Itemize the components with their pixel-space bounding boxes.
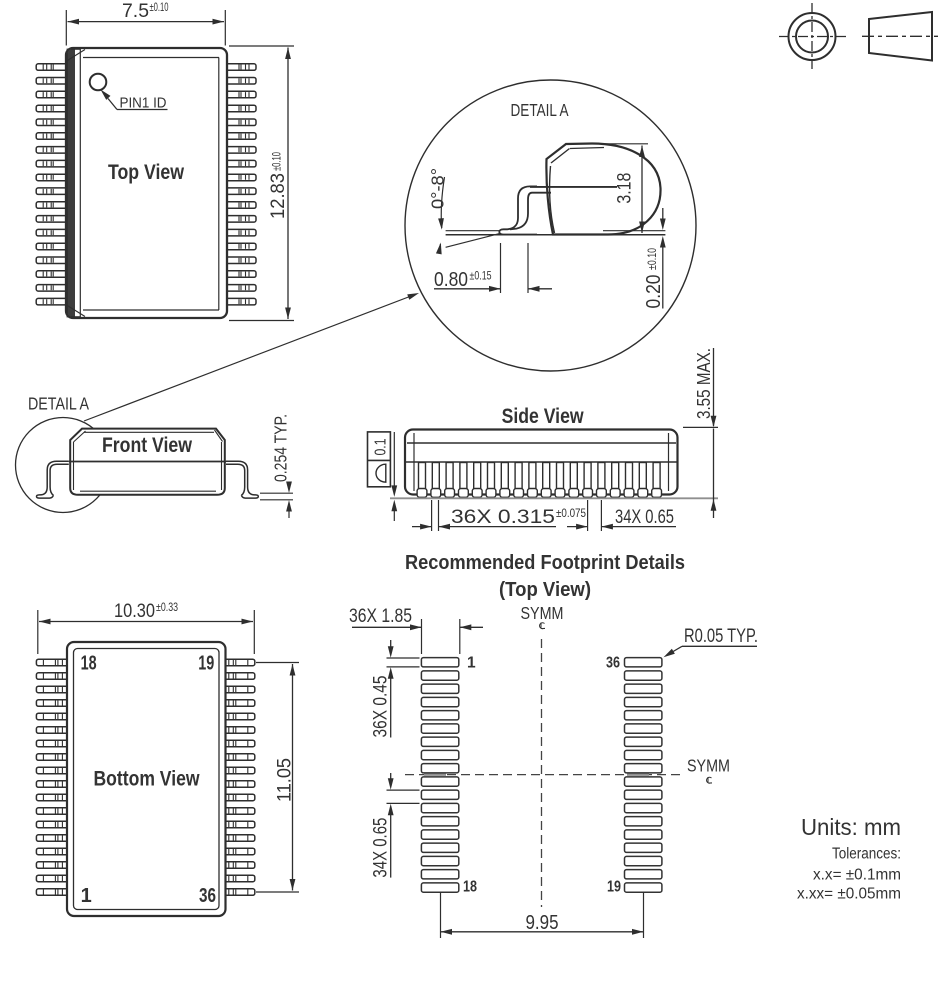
svg-text:Top View: Top View bbox=[108, 161, 185, 184]
svg-text:9.95: 9.95 bbox=[526, 912, 559, 934]
svg-text:10.30: 10.30 bbox=[114, 600, 155, 622]
svg-text:34X 0.65: 34X 0.65 bbox=[615, 507, 674, 528]
svg-text:x.x= ±0.1mm: x.x= ±0.1mm bbox=[813, 867, 901, 884]
svg-text:36X 0.45: 36X 0.45 bbox=[371, 676, 392, 738]
svg-text:12.83: 12.83 bbox=[267, 173, 289, 219]
svg-text:3.55 MAX.: 3.55 MAX. bbox=[693, 348, 714, 419]
svg-text:±0.10: ±0.10 bbox=[272, 152, 284, 171]
svg-text:Bottom View: Bottom View bbox=[94, 768, 201, 791]
svg-text:36: 36 bbox=[606, 654, 620, 671]
svg-text:±0.10: ±0.10 bbox=[647, 248, 659, 270]
svg-text:Front View: Front View bbox=[102, 434, 193, 457]
svg-text:18: 18 bbox=[81, 653, 97, 675]
svg-text:36: 36 bbox=[199, 885, 216, 907]
svg-text:(Top View): (Top View) bbox=[499, 578, 591, 601]
svg-text:Recommended Footprint Details: Recommended Footprint Details bbox=[405, 551, 685, 574]
svg-text:±0.33: ±0.33 bbox=[156, 602, 178, 614]
svg-text:±0.15: ±0.15 bbox=[470, 271, 492, 283]
svg-text:R0.05 TYP.: R0.05 TYP. bbox=[684, 626, 758, 647]
svg-text:SYMM: SYMM bbox=[521, 603, 564, 623]
svg-text:19: 19 bbox=[607, 879, 621, 896]
svg-text:x.xx= ±0.05mm: x.xx= ±0.05mm bbox=[797, 886, 901, 903]
svg-text:11.05: 11.05 bbox=[274, 758, 296, 802]
svg-text:1: 1 bbox=[81, 885, 92, 907]
svg-text:Side View: Side View bbox=[502, 405, 585, 428]
svg-text:Units: mm: Units: mm bbox=[801, 814, 901, 840]
svg-text:36X 1.85: 36X 1.85 bbox=[349, 606, 412, 627]
svg-text:0.1: 0.1 bbox=[373, 438, 390, 455]
svg-text:1: 1 bbox=[467, 654, 476, 671]
svg-text:0.20: 0.20 bbox=[643, 275, 665, 309]
svg-text:SYMM: SYMM bbox=[687, 756, 730, 776]
svg-text:36X 0.315: 36X 0.315 bbox=[451, 507, 555, 528]
svg-text:0.254 TYP.: 0.254 TYP. bbox=[271, 414, 291, 482]
svg-text:18: 18 bbox=[463, 879, 477, 896]
svg-text:34X 0.65: 34X 0.65 bbox=[371, 818, 392, 878]
svg-text:±0.10: ±0.10 bbox=[150, 2, 169, 14]
svg-text:PIN1 ID: PIN1 ID bbox=[120, 95, 167, 112]
svg-text:±0.075: ±0.075 bbox=[556, 508, 586, 520]
svg-text:7.5: 7.5 bbox=[122, 1, 149, 22]
svg-text:DETAIL A: DETAIL A bbox=[28, 394, 89, 414]
svg-text:3.18: 3.18 bbox=[614, 173, 636, 204]
svg-text:Tolerances:: Tolerances: bbox=[832, 846, 901, 863]
svg-text:19: 19 bbox=[198, 653, 214, 675]
svg-text:0.80: 0.80 bbox=[434, 269, 468, 291]
svg-text:0°-8°: 0°-8° bbox=[428, 168, 448, 209]
svg-text:DETAIL A: DETAIL A bbox=[511, 100, 569, 120]
